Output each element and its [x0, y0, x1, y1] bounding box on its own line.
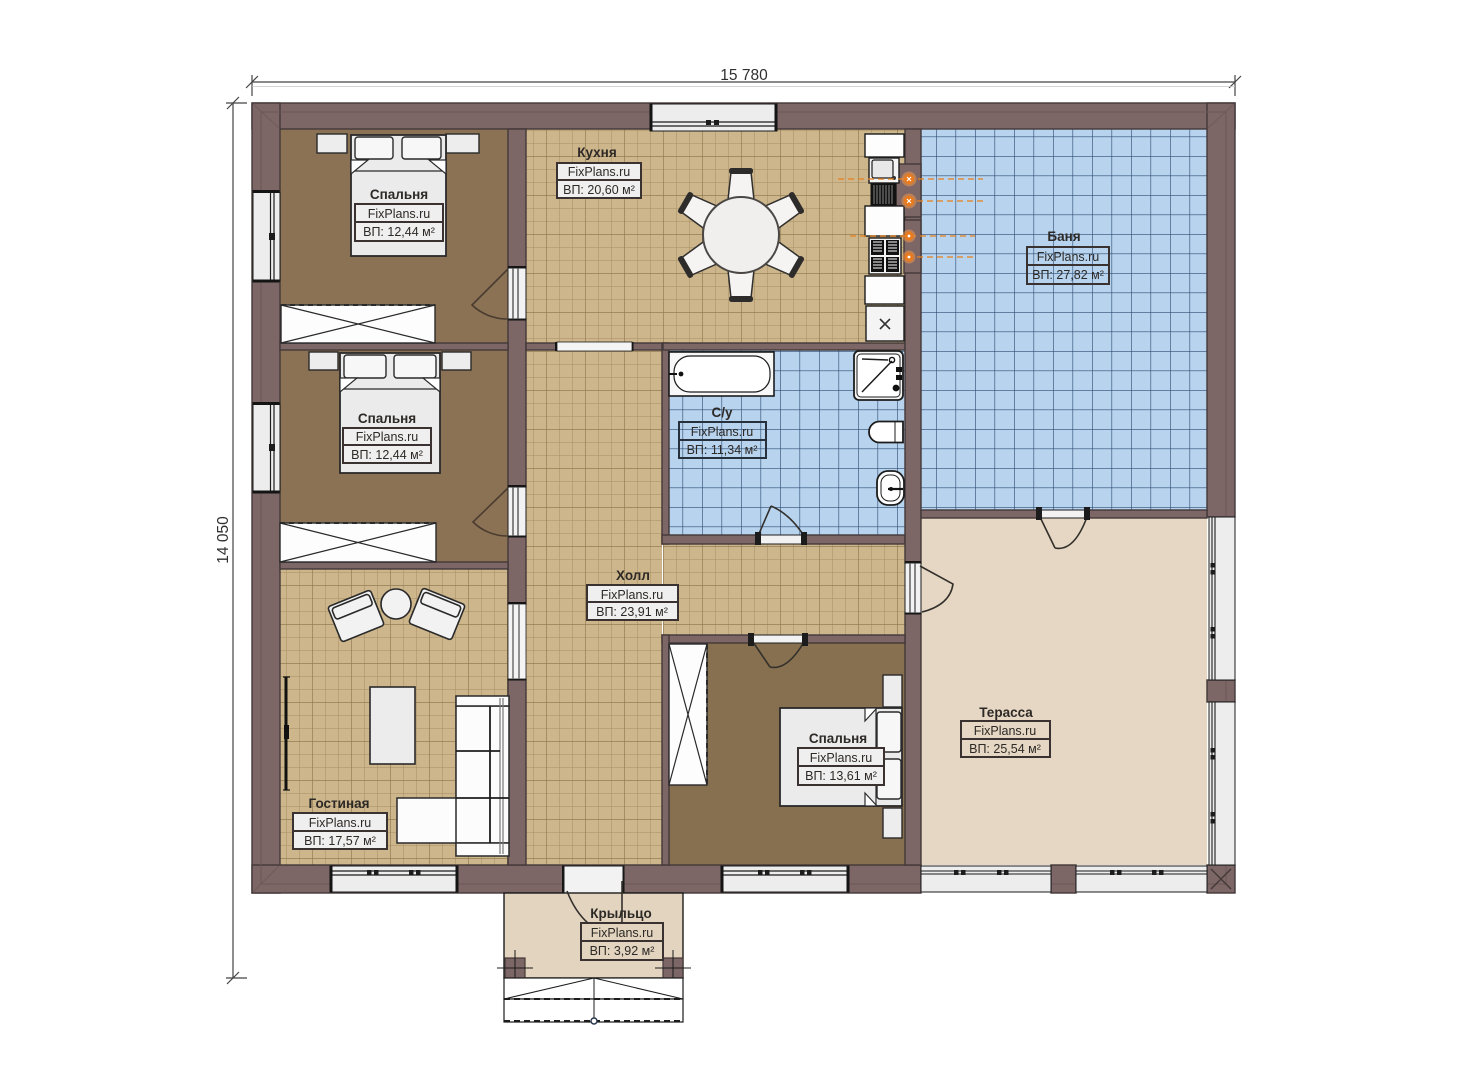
svg-text:Гостиная: Гостиная	[308, 796, 369, 811]
svg-text:FixPlans.ru: FixPlans.ru	[309, 816, 372, 830]
svg-text:Спальня: Спальня	[809, 731, 867, 746]
svg-text:ВП: 3,92 м²: ВП: 3,92 м²	[590, 944, 655, 958]
svg-text:Кухня: Кухня	[577, 145, 616, 160]
svg-text:ВП: 27,82 м²: ВП: 27,82 м²	[1032, 268, 1104, 282]
svg-text:FixPlans.ru: FixPlans.ru	[691, 425, 754, 439]
svg-text:Спальня: Спальня	[358, 411, 416, 426]
svg-text:15 780: 15 780	[720, 67, 768, 84]
svg-text:ВП: 23,91 м²: ВП: 23,91 м²	[596, 605, 668, 619]
svg-text:ВП: 20,60 м²: ВП: 20,60 м²	[563, 183, 635, 197]
svg-text:FixPlans.ru: FixPlans.ru	[810, 751, 873, 765]
svg-text:FixPlans.ru: FixPlans.ru	[568, 165, 631, 179]
svg-text:ВП: 11,34 м²: ВП: 11,34 м²	[687, 443, 758, 457]
svg-text:Баня: Баня	[1047, 229, 1080, 244]
svg-text:FixPlans.ru: FixPlans.ru	[1037, 250, 1100, 264]
svg-text:ВП: 12,44 м²: ВП: 12,44 м²	[351, 448, 423, 462]
svg-text:ВП: 25,54 м²: ВП: 25,54 м²	[969, 742, 1041, 756]
svg-text:FixPlans.ru: FixPlans.ru	[356, 430, 419, 444]
svg-text:Крыльцо: Крыльцо	[590, 906, 651, 921]
svg-text:Терасса: Терасса	[979, 705, 1033, 720]
svg-text:С/у: С/у	[711, 405, 733, 420]
svg-text:ВП: 12,44 м²: ВП: 12,44 м²	[363, 225, 435, 239]
svg-text:Спальня: Спальня	[370, 187, 428, 202]
svg-text:ВП: 17,57 м²: ВП: 17,57 м²	[304, 834, 376, 848]
svg-text:ВП: 13,61 м²: ВП: 13,61 м²	[805, 769, 877, 783]
svg-text:Холл: Холл	[616, 568, 650, 583]
svg-text:FixPlans.ru: FixPlans.ru	[601, 588, 664, 602]
svg-text:FixPlans.ru: FixPlans.ru	[974, 724, 1037, 738]
svg-text:FixPlans.ru: FixPlans.ru	[591, 926, 654, 940]
svg-text:FixPlans.ru: FixPlans.ru	[368, 207, 431, 221]
svg-text:14 050: 14 050	[215, 516, 232, 564]
